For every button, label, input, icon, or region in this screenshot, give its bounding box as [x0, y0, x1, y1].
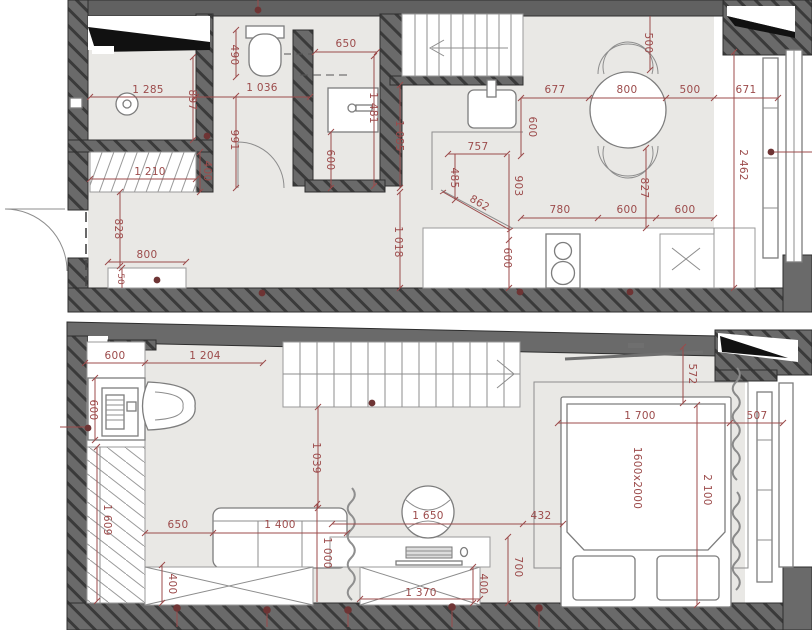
- dim-label: 490: [228, 45, 240, 66]
- dim-label: 600: [501, 248, 513, 269]
- lower-floor-plan: 600 1 204 600 1 039 572 1 700 507 1600x2…: [0, 313, 812, 630]
- radiator-icon: [763, 50, 802, 262]
- dim-label: 903: [512, 176, 524, 197]
- sink-basin-icon: [660, 234, 714, 288]
- dim-label: 827: [638, 178, 650, 199]
- dim-label: 650: [168, 519, 189, 531]
- dim-label: 677: [545, 84, 566, 96]
- dim-label: 1 609: [101, 504, 113, 536]
- dim-label: 600: [105, 350, 126, 362]
- dim-label: 600: [324, 150, 336, 171]
- dim-label: 600: [87, 400, 99, 421]
- dim-label: 50: [115, 273, 125, 285]
- dim-label: 485: [448, 168, 460, 189]
- dim-label: 800: [617, 84, 638, 96]
- dim-label: 1 085: [393, 120, 405, 152]
- dim-label: 500: [680, 84, 701, 96]
- dim-label: 780: [550, 204, 571, 216]
- stove-icon: [546, 234, 580, 288]
- dim-label: 432: [531, 510, 552, 522]
- dim-label: 572: [686, 364, 698, 385]
- dim-label: 800: [137, 249, 158, 261]
- dim-label: 1 400: [264, 519, 296, 531]
- dim-label: 828: [112, 219, 124, 240]
- dim-label: 1 036: [246, 82, 278, 94]
- dim-label: 1 370: [405, 587, 437, 599]
- dim-label: 1 039: [310, 442, 322, 474]
- dim-label: 400: [166, 574, 178, 595]
- floorplan-canvas: 1 285 897 490 1 036 991 650 1 481 600 1 …: [0, 0, 812, 630]
- dim-label: 897: [186, 90, 198, 111]
- dim-label: 650: [336, 38, 357, 50]
- dim-label: 671: [736, 84, 757, 96]
- dim-label: 2 462: [737, 149, 749, 181]
- dim-label: 500: [642, 33, 654, 54]
- dim-label: 600: [526, 117, 538, 138]
- dim-label: 991: [228, 130, 240, 151]
- dim-label: 400: [201, 161, 213, 182]
- dim-label: 1 481: [367, 92, 379, 124]
- dim-label: 1 210: [134, 166, 166, 178]
- dim-label: 1 700: [624, 410, 656, 422]
- dim-label: 507: [747, 410, 768, 422]
- stairs-icon: [283, 342, 520, 407]
- dim-label: 600: [617, 204, 638, 216]
- dim-label: 700: [512, 557, 524, 578]
- dim-label: 600: [675, 204, 696, 216]
- dim-label: 400: [477, 574, 489, 595]
- dim-label: 1 650: [412, 510, 444, 522]
- dim-label: 757: [468, 141, 489, 153]
- dim-label: 1 018: [392, 226, 404, 258]
- dim-label: 1600x2000: [631, 447, 643, 509]
- dim-label: 1 285: [132, 84, 164, 96]
- dim-label: 1 000: [321, 537, 333, 569]
- upper-floor-plan: 1 285 897 490 1 036 991 650 1 481 600 1 …: [0, 0, 812, 313]
- dim-label: 1 204: [189, 350, 221, 362]
- stairs-icon: [402, 14, 523, 76]
- wardrobe: [87, 447, 145, 603]
- dim-label: 2 100: [701, 474, 713, 506]
